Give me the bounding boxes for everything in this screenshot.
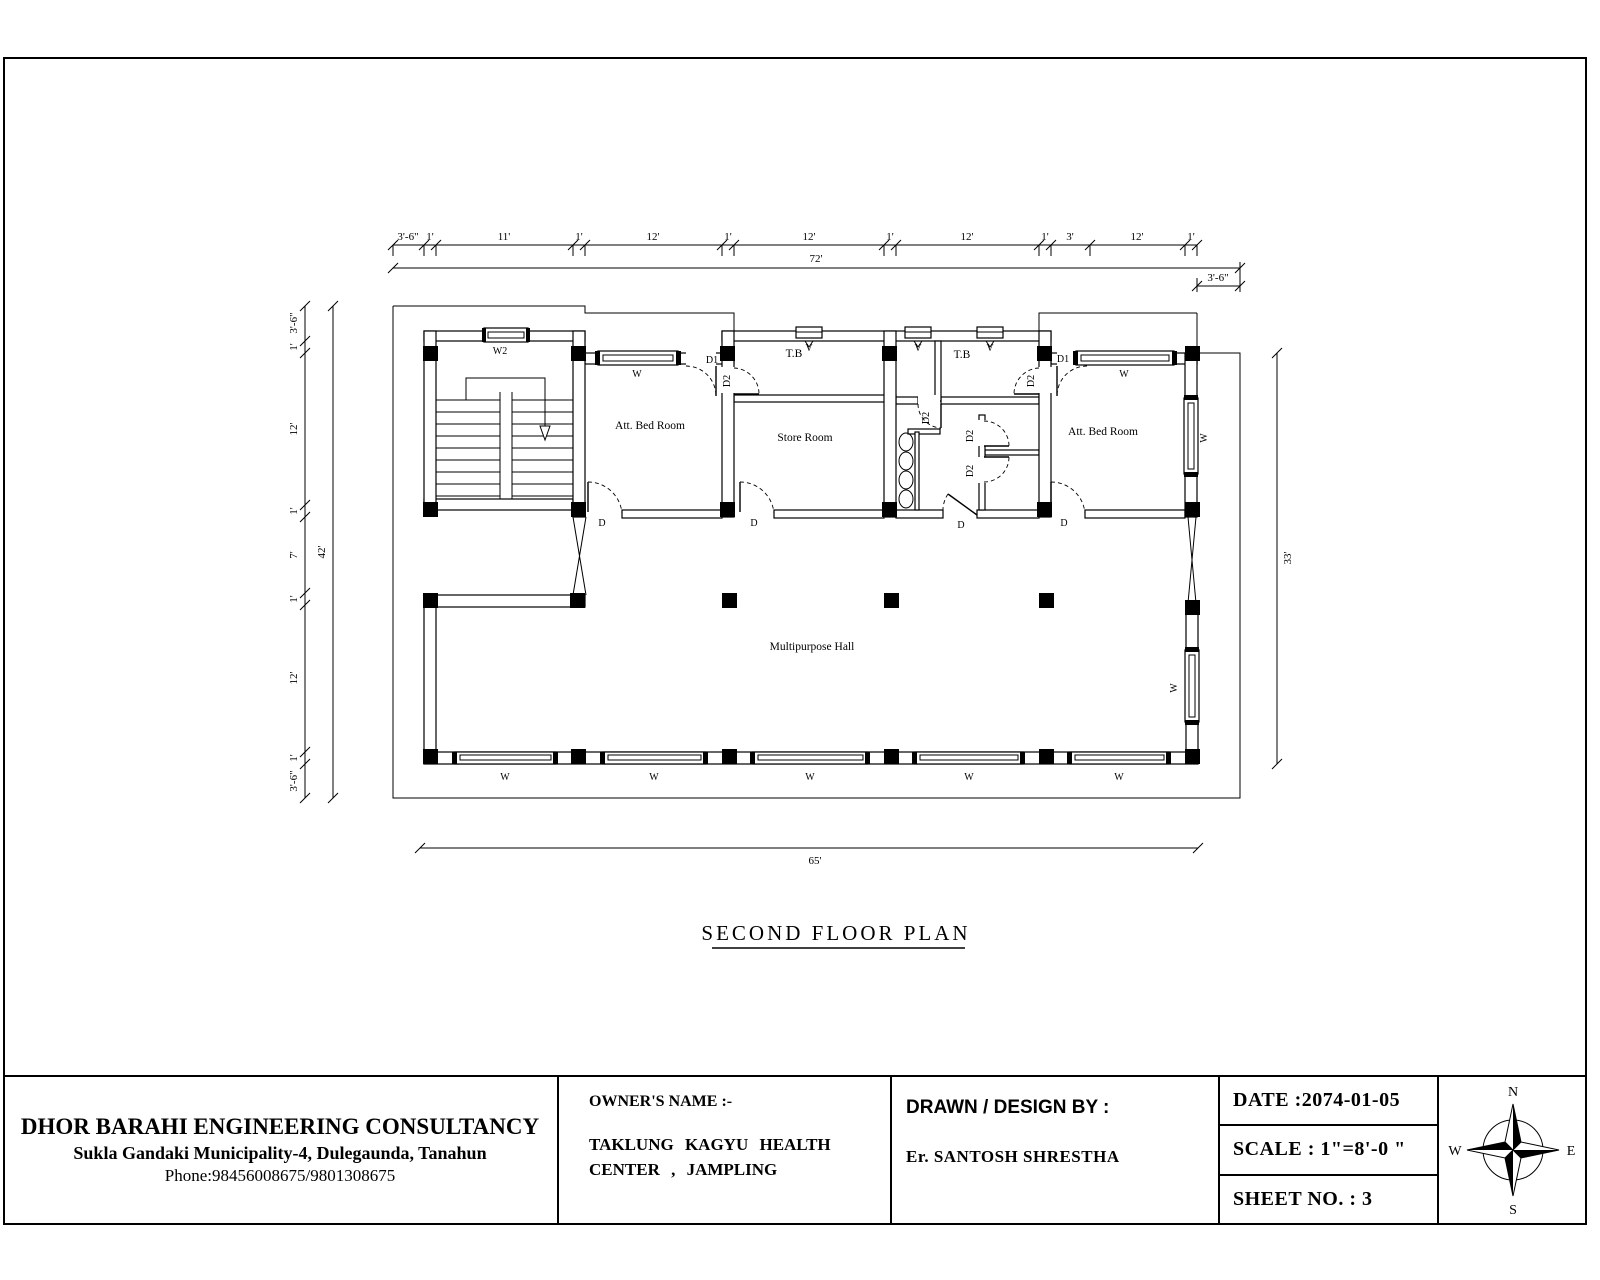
dim-left-7: 1' <box>288 754 300 762</box>
walls <box>424 331 1198 764</box>
room-att-bed-right: Att. Bed Room <box>1068 426 1138 438</box>
dim-top-right-offset: 3'-6" <box>1207 272 1228 284</box>
dimension-left: 3'-6" 1' 12' 1' 7' 1' 12' 1' 3'-6" 42' <box>288 301 338 803</box>
door-d-toilet <box>943 494 977 515</box>
room-att-bed-left: Att. Bed Room <box>615 420 685 432</box>
cross-braces <box>573 517 1196 603</box>
compass-s: S <box>1509 1203 1517 1218</box>
label-w2: W2 <box>493 346 507 357</box>
window-bed2-top <box>1073 351 1177 365</box>
owner-cell: OWNER'S NAME :- TAKLUNG KAGYU HEALTH CEN… <box>557 1077 890 1223</box>
dim-left-total: 42' <box>316 545 328 558</box>
window-hall-bottom-2 <box>600 752 708 764</box>
label-w-hb1: W <box>500 772 510 783</box>
dim-top-5: 1' <box>724 231 732 243</box>
toilet-fixtures <box>899 433 913 508</box>
label-d2-bed2: D2 <box>1026 375 1037 387</box>
label-d2-corridor: D2 <box>921 412 932 424</box>
dim-left-1: 1' <box>288 343 300 351</box>
slab-outline <box>393 306 1240 798</box>
sheet-no-field: SHEET NO. : 3 <box>1220 1176 1437 1223</box>
label-v2: V <box>914 343 922 354</box>
dim-bottom-total: 65' <box>809 855 822 867</box>
stair-direction-arrow <box>540 382 550 440</box>
columns <box>423 346 1200 764</box>
opening-labels: W2 W W W W W W W W W D1 D1 D2 D2 D2 D2 D… <box>493 343 1210 783</box>
label-d-bed1: D <box>598 518 605 529</box>
window-hall-bottom-5 <box>1067 752 1171 764</box>
dim-top-11: 12' <box>1131 231 1144 243</box>
door-d2-tb-left <box>734 368 759 394</box>
dim-top-4: 12' <box>647 231 660 243</box>
dim-left-8: 3'-6" <box>288 770 300 791</box>
dim-top-2: 11' <box>498 231 511 243</box>
dim-top-10: 3' <box>1066 231 1074 243</box>
meta-cell: DATE :2074-01-05 SCALE : 1"=8'-0 " SHEET… <box>1218 1077 1437 1223</box>
company-name: DHOR BARAHI ENGINEERING CONSULTANCY <box>21 1114 539 1140</box>
dim-top-6: 12' <box>803 231 816 243</box>
label-d1-bed1: D1 <box>706 355 718 366</box>
dim-top-3: 1' <box>575 231 583 243</box>
dim-top-9: 1' <box>1041 231 1049 243</box>
dim-top-12: 1' <box>1187 231 1195 243</box>
room-labels: Att. Bed Room Store Room T.B T.B Att. Be… <box>615 348 1138 653</box>
label-v1: V <box>805 343 813 354</box>
date-field: DATE :2074-01-05 <box>1220 1077 1437 1126</box>
company-address: Sukla Gandaki Municipality-4, Dulegaunda… <box>73 1143 486 1164</box>
company-phone: Phone:98456008675/9801308675 <box>165 1166 395 1186</box>
owner-name-line1: TAKLUNG KAGYU HEALTH <box>589 1133 859 1158</box>
room-store: Store Room <box>777 432 832 444</box>
label-d-toilet: D <box>957 520 964 531</box>
window-hall-bottom-1 <box>452 752 558 764</box>
owner-name: TAKLUNG KAGYU HEALTH CENTER , JAMPLING <box>589 1133 859 1182</box>
label-w-bed2: W <box>1119 369 1129 380</box>
window-hall-right <box>1185 647 1199 725</box>
compass-w: W <box>1448 1144 1462 1159</box>
door-d-store <box>740 482 774 514</box>
label-w-hb5: W <box>1114 772 1124 783</box>
window-w2 <box>482 328 530 342</box>
label-w-hall-right: W <box>1169 683 1180 693</box>
label-d-bed2: D <box>1060 518 1067 529</box>
window-bed1-top <box>595 351 681 365</box>
dim-top-8: 12' <box>961 231 974 243</box>
label-w-hb4: W <box>964 772 974 783</box>
dimension-right: 33' <box>1272 348 1294 769</box>
room-tb-right: T.B <box>954 349 971 361</box>
drawn-by-name: Er. SANTOSH SHRESTHA <box>906 1147 1218 1167</box>
plan-title-text: SECOND FLOOR PLAN <box>701 921 970 945</box>
dim-left-6: 12' <box>288 671 300 684</box>
dim-top-1: 1' <box>426 231 434 243</box>
consultancy-cell: DHOR BARAHI ENGINEERING CONSULTANCY Sukl… <box>3 1077 557 1223</box>
dimension-top: 3'-6" 1' 11' 1' 12' 1' 12' 1' 12' 1' 3' … <box>388 231 1245 292</box>
dim-top-total: 72' <box>810 253 823 265</box>
label-w-bed2-right: W <box>1199 433 1210 443</box>
dim-left-0: 3'-6" <box>288 312 300 333</box>
doors <box>588 366 1087 515</box>
door-d2-stall1 <box>984 421 1009 446</box>
door-d-bed2 <box>1051 482 1085 514</box>
staircase <box>436 378 573 499</box>
room-hall: Multipurpose Hall <box>770 641 855 653</box>
floor-plan-drawing: 3'-6" 1' 11' 1' 12' 1' 12' 1' 12' 1' 3' … <box>0 0 1600 1060</box>
compass-n: N <box>1508 1085 1518 1100</box>
label-d-store: D <box>750 518 757 529</box>
dim-left-3: 1' <box>288 507 300 515</box>
dim-top-0: 3'-6" <box>397 231 418 243</box>
label-v3: V <box>986 343 994 354</box>
compass-e: E <box>1567 1144 1576 1159</box>
drawn-by-cell: DRAWN / DESIGN BY : Er. SANTOSH SHRESTHA <box>890 1077 1218 1223</box>
drawn-by-label: DRAWN / DESIGN BY : <box>906 1097 1218 1119</box>
title-block: DHOR BARAHI ENGINEERING CONSULTANCY Sukl… <box>3 1075 1587 1225</box>
label-d2-stall2: D2 <box>965 465 976 477</box>
label-w-hb2: W <box>649 772 659 783</box>
window-bed2-right <box>1184 395 1198 477</box>
room-tb-left: T.B <box>786 348 803 360</box>
door-d1-bed1 <box>686 366 716 396</box>
door-d2-stall2 <box>984 457 1009 482</box>
compass-icon: N E S W <box>1443 1080 1583 1220</box>
dimension-bottom: 65' <box>415 843 1203 867</box>
dim-right-total: 33' <box>1282 551 1294 564</box>
window-hall-bottom-4 <box>912 752 1025 764</box>
windows <box>452 327 1199 764</box>
label-d2-tb-left: D2 <box>722 375 733 387</box>
owner-label: OWNER'S NAME :- <box>589 1093 890 1111</box>
compass-cell: N E S W <box>1437 1077 1587 1223</box>
label-d1-bed2: D1 <box>1057 354 1069 365</box>
dim-left-5: 1' <box>288 595 300 603</box>
door-d1-bed2 <box>1057 366 1087 396</box>
owner-name-line2: CENTER , JAMPLING <box>589 1158 859 1183</box>
label-w-bed1: W <box>632 369 642 380</box>
window-hall-bottom-3 <box>750 752 870 764</box>
door-d-bed1 <box>588 482 622 514</box>
plan-title: SECOND FLOOR PLAN <box>701 921 970 948</box>
dim-left-2: 12' <box>288 422 300 435</box>
dim-top-7: 1' <box>886 231 894 243</box>
label-d2-stall1: D2 <box>965 430 976 442</box>
dim-left-4: 7' <box>288 551 300 559</box>
scale-field: SCALE : 1"=8'-0 " <box>1220 1126 1437 1175</box>
label-w-hb3: W <box>805 772 815 783</box>
